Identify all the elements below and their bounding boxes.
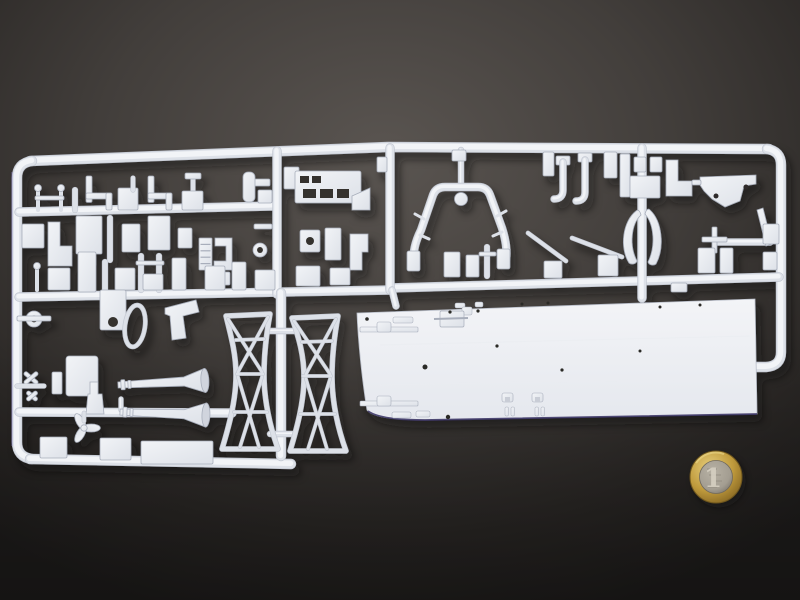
h-bar — [136, 261, 164, 265]
deck-slot — [511, 407, 515, 416]
block-12 — [78, 252, 96, 292]
deck-hole — [560, 368, 563, 371]
block-13 — [115, 268, 135, 290]
stub-deck-bow — [392, 289, 397, 306]
cabin-window-part — [295, 171, 361, 203]
diag-base-1 — [544, 261, 562, 278]
block-22 — [630, 176, 660, 198]
deck-pad — [392, 412, 411, 418]
plate-1 — [40, 437, 67, 458]
block-17 — [232, 262, 246, 290]
block-2 — [182, 191, 203, 210]
deck-cleat — [377, 322, 391, 332]
block-14 — [143, 274, 163, 290]
plate-3 — [141, 441, 213, 464]
block-5 — [22, 224, 44, 248]
tab-roundtop — [243, 172, 255, 202]
tab-3 — [620, 154, 630, 197]
deck-hole — [423, 365, 428, 370]
deck-plate-part — [357, 299, 757, 420]
deck-winch-rod — [434, 318, 468, 319]
deck-hole — [699, 304, 702, 307]
block-3 — [258, 190, 272, 203]
block-20 — [296, 266, 320, 286]
block-9 — [178, 228, 192, 248]
deck-hole — [547, 302, 550, 305]
ladder-part — [199, 238, 212, 270]
deck-hole — [446, 415, 450, 419]
hole-block-1 — [300, 230, 320, 252]
deck-hole — [365, 317, 369, 321]
deck-pad — [475, 302, 483, 307]
tab-1 — [543, 152, 554, 176]
block-7 — [122, 224, 140, 252]
runner-vertical-2 — [390, 147, 391, 290]
block-8 — [148, 216, 170, 250]
diag-base-2 — [598, 255, 618, 276]
block-24 — [720, 248, 733, 273]
nub-1 — [377, 157, 387, 172]
stub-bar — [254, 224, 272, 229]
deck-pad — [393, 317, 413, 323]
ring-cross-bar — [17, 316, 51, 321]
cross-bar-1 — [35, 196, 64, 200]
hole-block-2 — [100, 290, 126, 330]
block-6 — [76, 216, 102, 254]
deck-hole — [639, 350, 642, 353]
runner-vertical-1 — [277, 150, 278, 294]
block-15 — [172, 258, 186, 290]
deck-slot — [505, 407, 509, 416]
deck-hole — [476, 309, 479, 312]
deck-hole — [448, 310, 451, 313]
one-euro-coin: 1 — [690, 451, 742, 503]
deck-hole — [495, 344, 498, 347]
clip-block-2 — [650, 157, 662, 172]
deck-clip-notch — [535, 397, 540, 402]
block-23 — [698, 248, 715, 273]
block-18 — [255, 270, 275, 290]
sprue-photo-canvas: 1 — [0, 0, 800, 600]
stub-horn — [121, 398, 122, 410]
deck-cleat — [377, 396, 391, 406]
gun-mount-arm — [692, 180, 701, 185]
cleat-top — [185, 173, 201, 179]
clip-block-1 — [634, 157, 646, 172]
block-27 — [444, 252, 460, 277]
block-28 — [466, 255, 479, 277]
deck-hole — [659, 306, 662, 309]
deck-hole — [521, 303, 524, 306]
ring-part — [253, 243, 267, 257]
deck-pad — [416, 411, 430, 417]
wing-small — [254, 179, 270, 186]
tab-2 — [604, 152, 617, 178]
deck-slot — [535, 407, 539, 416]
photo-model-kit-sprue: 1 — [0, 0, 800, 600]
block-19 — [325, 228, 341, 260]
stub-mast-top — [270, 330, 295, 331]
plate-2 — [100, 438, 131, 460]
deck-clip-notch — [505, 397, 510, 402]
stub-deck-top — [671, 283, 687, 292]
post-5 — [52, 372, 62, 394]
davit-bar — [479, 252, 496, 256]
block-16 — [205, 266, 225, 290]
block-21 — [330, 268, 350, 285]
deck-slot — [541, 407, 545, 416]
block-25 — [763, 224, 779, 244]
coin-numeral: 1 — [704, 464, 722, 494]
block-26 — [763, 252, 777, 270]
nub-2 — [452, 150, 466, 161]
block-11 — [48, 268, 70, 290]
